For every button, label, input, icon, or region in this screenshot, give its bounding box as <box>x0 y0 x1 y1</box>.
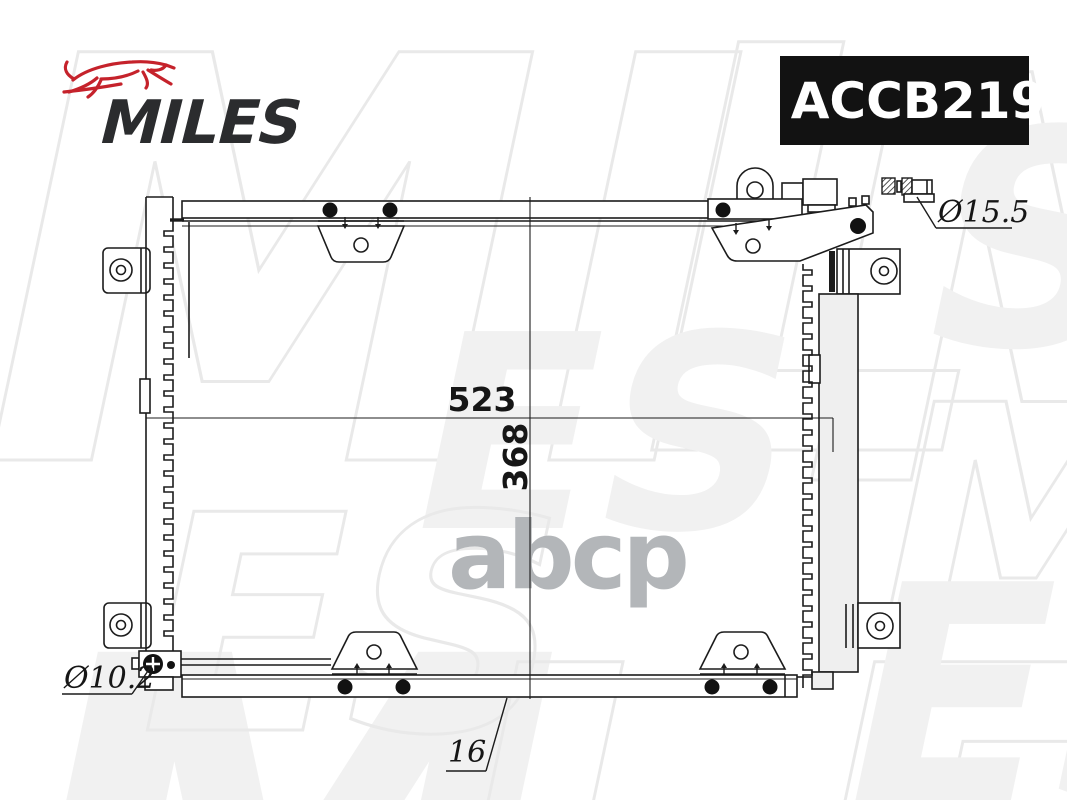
part-number-text: ACCB219 <box>791 72 1046 130</box>
condenser-product-drawing-page: MI L M ES S MI M ES LES ES abcp <box>0 0 1067 800</box>
bolt-head <box>383 203 398 218</box>
dim-core-width-label: 523 <box>448 380 517 419</box>
bolt-head <box>396 680 411 695</box>
dim-mount-hole-diameter: Ø10.2 <box>62 661 155 696</box>
bolt-head <box>323 203 338 218</box>
dim-core-thickness-label: 16 <box>448 735 486 770</box>
dim-core-height-label: 368 <box>496 423 535 492</box>
left-side-tab <box>140 379 150 413</box>
bolt-head <box>763 680 778 695</box>
abcp-watermark: abcp <box>448 502 686 611</box>
miles-logo-text: MILES <box>93 88 310 158</box>
left-clamp-bottom <box>104 603 151 648</box>
bolt-head <box>716 203 731 218</box>
condenser-technical-drawing: MI L M ES S MI M ES LES ES abcp <box>0 0 1067 800</box>
bolt-head <box>705 680 720 695</box>
dim-mount-hole-label: Ø10.2 <box>63 661 155 696</box>
dim-fitting-diameter-label: Ø15.5 <box>937 195 1029 230</box>
tank-side-tab <box>809 355 820 383</box>
left-clamp-top <box>103 248 150 293</box>
part-number-badge: ACCB219 <box>780 56 1045 145</box>
bolt-head <box>338 680 353 695</box>
bolt-head <box>850 218 866 234</box>
